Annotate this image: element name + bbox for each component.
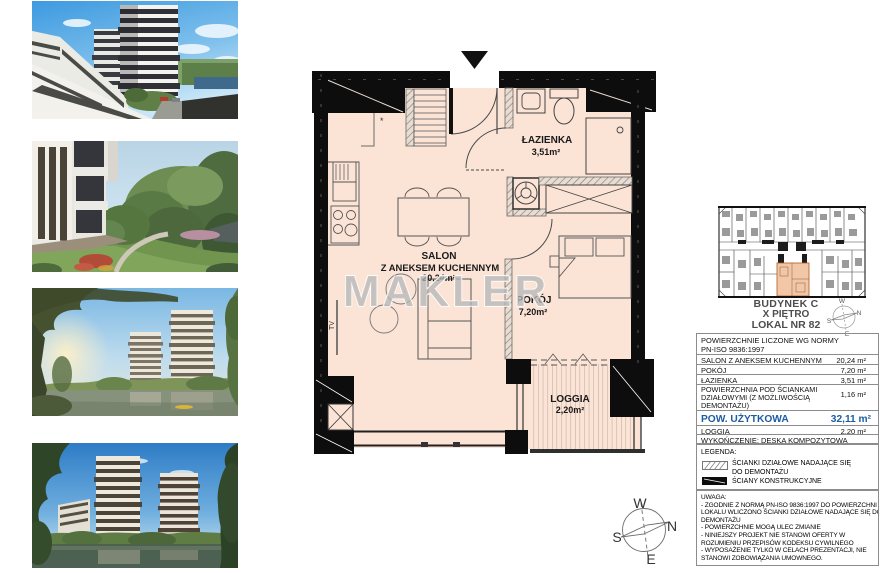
svg-text:S: S: [827, 318, 832, 325]
svg-text:W: W: [633, 495, 647, 511]
svg-text:LOGGIA: LOGGIA: [550, 394, 589, 405]
svg-text:E: E: [646, 551, 655, 567]
svg-text:MAKLER: MAKLER: [343, 267, 549, 316]
svg-text:TV: TV: [329, 321, 336, 330]
svg-text:S: S: [612, 529, 621, 545]
svg-text:2,20m²: 2,20m²: [556, 405, 585, 415]
svg-text:SALON: SALON: [422, 251, 457, 262]
svg-text:*: *: [380, 116, 384, 126]
svg-text:3,51m²: 3,51m²: [532, 147, 561, 157]
svg-text:ŁAZIENKA: ŁAZIENKA: [522, 135, 573, 146]
svg-text:N: N: [667, 518, 677, 534]
svg-text:W: W: [839, 298, 846, 305]
svg-text:N: N: [857, 310, 862, 317]
